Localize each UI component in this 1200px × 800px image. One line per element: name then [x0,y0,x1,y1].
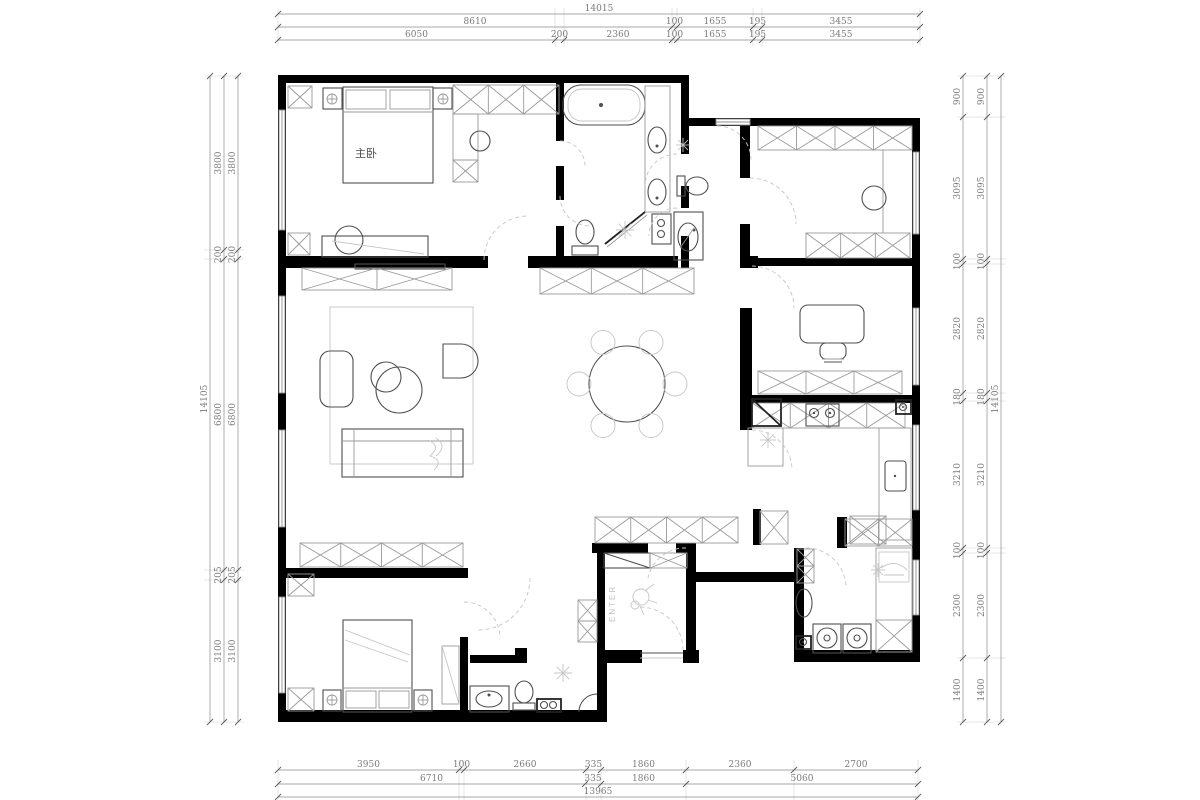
svg-text:14105: 14105 [991,384,1001,413]
svg-text:6800: 6800 [214,403,224,426]
svg-text:100: 100 [666,30,683,40]
svg-text:100: 100 [977,253,987,270]
svg-text:3455: 3455 [830,30,853,40]
svg-text:900: 900 [977,88,987,105]
svg-text:8610: 8610 [464,17,487,27]
svg-text:2300: 2300 [953,594,963,617]
svg-text:2820: 2820 [977,317,987,340]
svg-text:6050: 6050 [405,30,428,40]
svg-text:3095: 3095 [953,176,963,199]
svg-text:1655: 1655 [704,30,727,40]
svg-text:1400: 1400 [953,678,963,701]
svg-text:195: 195 [749,30,766,40]
svg-text:3455: 3455 [830,17,853,27]
svg-text:100: 100 [666,17,683,27]
walls-layer [278,75,920,722]
svg-text:1400: 1400 [977,678,987,701]
svg-text:3210: 3210 [953,463,963,486]
svg-text:3800: 3800 [228,151,238,174]
svg-text:2660: 2660 [514,760,537,770]
svg-text:100: 100 [953,542,963,559]
svg-text:3100: 3100 [228,639,238,662]
svg-text:2360: 2360 [729,760,752,770]
svg-text:200: 200 [228,246,238,263]
svg-text:2300: 2300 [977,594,987,617]
floor-plan-page: 1401586101001655195345560502002360100165… [0,0,1200,800]
svg-text:200: 200 [214,246,224,263]
svg-text:100: 100 [953,253,963,270]
svg-text:3100: 3100 [214,639,224,662]
svg-text:6800: 6800 [228,403,238,426]
svg-text:2360: 2360 [607,30,630,40]
svg-text:6710: 6710 [420,774,443,784]
svg-text:205: 205 [228,566,238,583]
svg-text:13965: 13965 [584,787,613,797]
svg-text:2820: 2820 [953,317,963,340]
svg-text:900: 900 [953,88,963,105]
svg-text:3950: 3950 [357,760,380,770]
svg-text:205: 205 [214,566,224,583]
svg-text:14015: 14015 [585,4,614,14]
svg-text:14105: 14105 [200,384,210,413]
svg-text:335: 335 [585,760,602,770]
svg-text:3800: 3800 [214,151,224,174]
svg-text:195: 195 [749,17,766,27]
svg-text:3095: 3095 [977,176,987,199]
svg-text:2700: 2700 [845,760,868,770]
svg-text:1860: 1860 [632,760,655,770]
svg-text:335: 335 [584,774,601,784]
floor-plan-canvas: 1401586101001655195345560502002360100165… [0,0,1200,800]
svg-text:180: 180 [953,388,963,405]
svg-text:1860: 1860 [632,774,655,784]
svg-text:100: 100 [453,760,470,770]
svg-text:5060: 5060 [791,774,814,784]
svg-text:1655: 1655 [704,17,727,27]
svg-text:3210: 3210 [977,463,987,486]
svg-text:180: 180 [977,388,987,405]
svg-text:200: 200 [551,30,568,40]
master-bedroom-label: 主卧 [355,147,377,160]
entry-label: ENTER [608,585,617,622]
svg-text:100: 100 [977,542,987,559]
